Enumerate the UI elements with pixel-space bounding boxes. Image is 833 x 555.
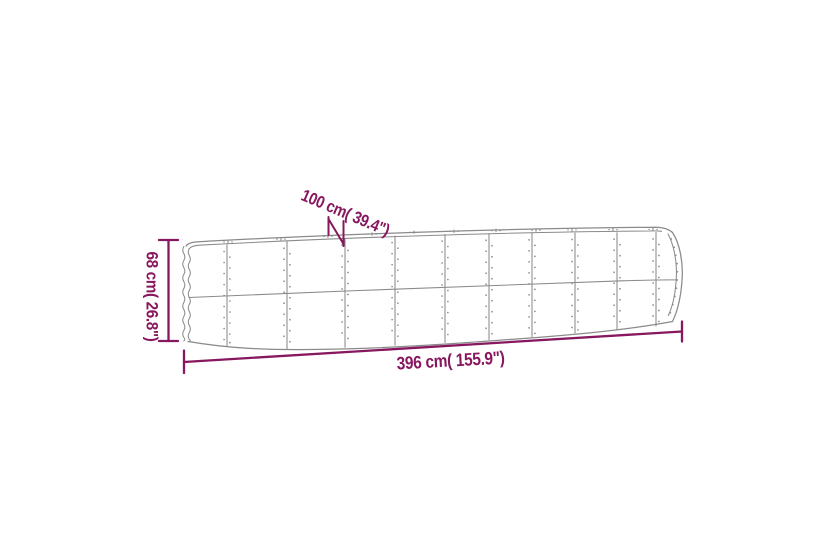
panel-seams	[227, 233, 656, 349]
rivet-dots	[223, 238, 660, 343]
planter-rim-front-line	[190, 231, 662, 249]
planter-drawing	[183, 227, 683, 349]
corrugated-left-edge	[183, 247, 191, 342]
depth-label: 100 cm( 39.4")	[298, 186, 392, 240]
length-label: 396 cm( 155.9")	[396, 347, 505, 373]
length-dimension: 396 cm( 155.9")	[184, 322, 682, 374]
depth-dimension-line	[329, 219, 344, 244]
planter-rim-back-line	[186, 227, 673, 246]
planter-right-end-outer	[673, 233, 683, 322]
height-dimension: 68 cm( 26.8")	[143, 240, 179, 342]
product-dimension-diagram: 68 cm( 26.8") 100 cm( 39.4") 396 cm( 155…	[0, 0, 833, 555]
planter-middle-seam	[189, 280, 677, 298]
diagram-page: 68 cm( 26.8") 100 cm( 39.4") 396 cm( 155…	[0, 0, 833, 555]
depth-dimension: 100 cm( 39.4")	[298, 186, 392, 246]
planter-right-end-inner	[668, 234, 676, 316]
height-label: 68 cm( 26.8")	[143, 252, 161, 342]
